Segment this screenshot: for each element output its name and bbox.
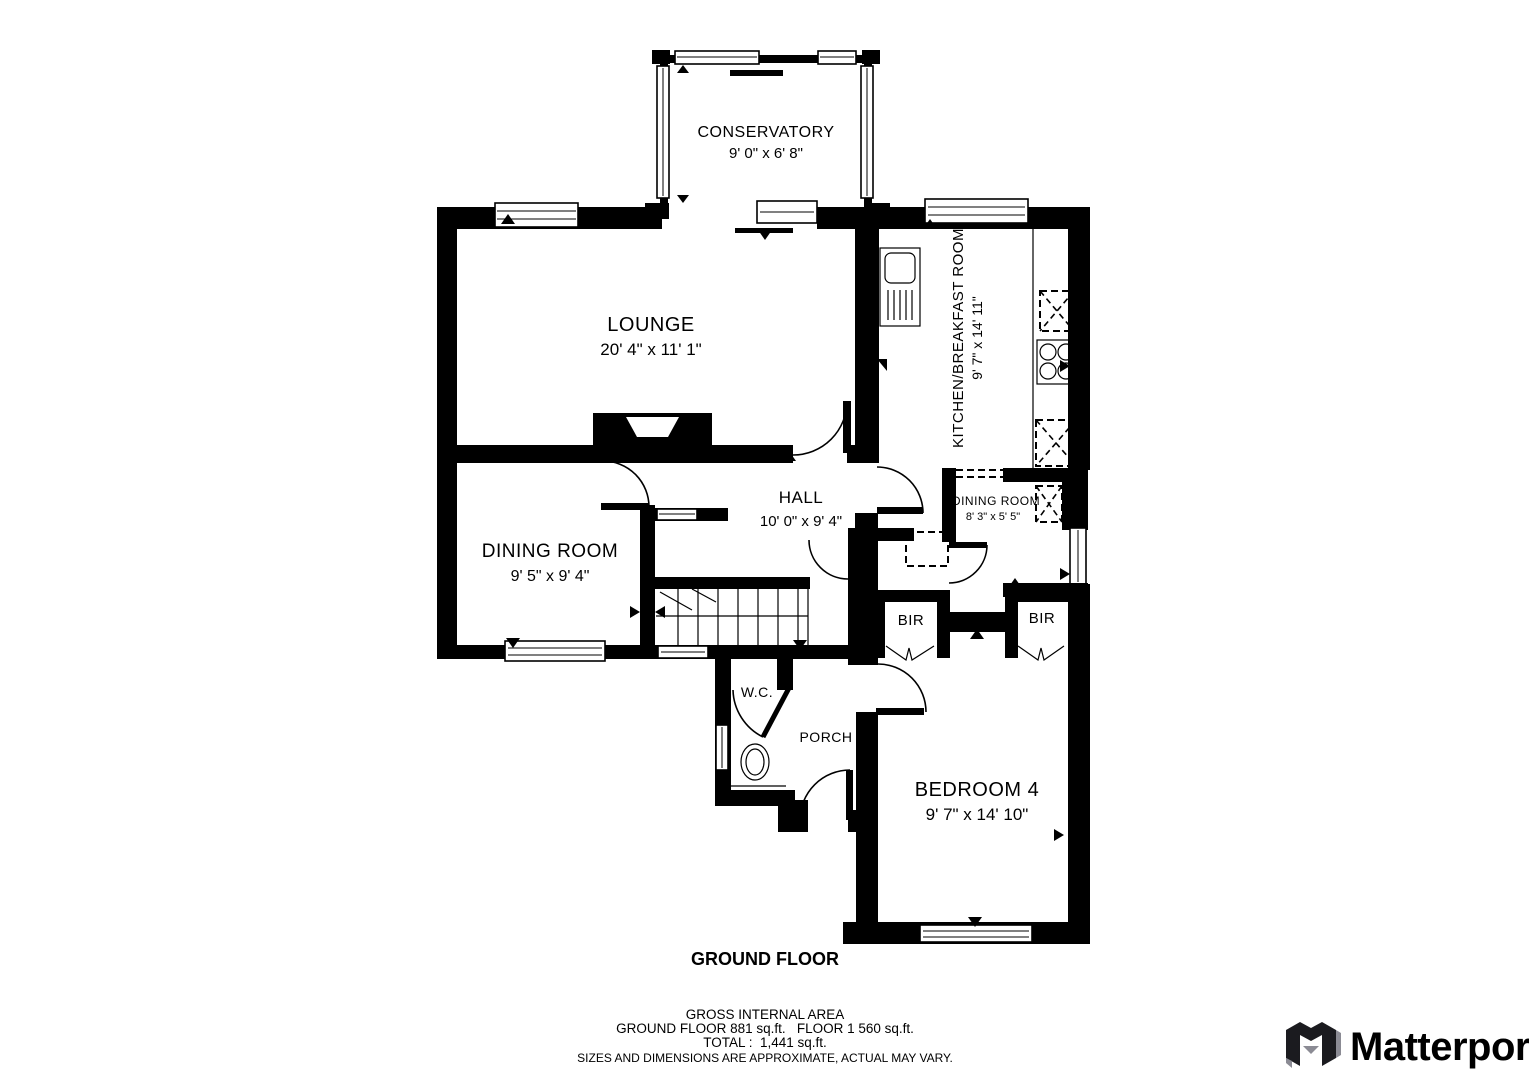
window xyxy=(505,641,605,661)
toilet-bowl xyxy=(746,749,764,775)
arrow-marker xyxy=(1060,568,1070,580)
door-arc xyxy=(793,401,847,455)
room-dims: 9' 7" x 14' 10" xyxy=(926,805,1029,824)
door-leaf xyxy=(876,708,924,715)
door-arc xyxy=(878,664,926,712)
area-title: GROSS INTERNAL AREA xyxy=(686,1007,845,1022)
floorplan-drawing: CONSERVATORY 9' 0" x 6' 8" LOUNGE 20' 4"… xyxy=(0,0,1529,1080)
room-label: KITCHEN/BREAKFAST ROOM xyxy=(950,228,967,448)
room-conservatory: CONSERVATORY 9' 0" x 6' 8" xyxy=(645,50,890,219)
wall xyxy=(1068,207,1090,470)
brand-name: Matterport xyxy=(1350,1025,1529,1069)
window xyxy=(925,199,1028,223)
wall xyxy=(878,528,914,541)
room-label-group: KITCHEN/BREAKFAST ROOM 9' 7" x 14' 11" xyxy=(950,228,985,448)
wall xyxy=(855,207,879,463)
logo-shape xyxy=(1322,1022,1336,1066)
logo-shape-gray xyxy=(1336,1030,1341,1058)
wall xyxy=(777,645,793,690)
wall xyxy=(855,513,878,530)
room-label: HALL xyxy=(779,488,824,507)
bifold-door xyxy=(1018,646,1064,660)
bifold-door xyxy=(886,646,934,660)
wall xyxy=(856,645,878,665)
window xyxy=(920,925,1032,942)
wall xyxy=(1030,468,1088,482)
wall xyxy=(437,445,793,463)
room-label: PORCH xyxy=(799,729,852,745)
sink-basin xyxy=(885,253,915,283)
staircase xyxy=(656,589,808,650)
disclaimer: SIZES AND DIMENSIONS ARE APPROXIMATE, AC… xyxy=(577,1051,953,1065)
room-dims: 10' 0" x 9' 4" xyxy=(760,513,842,530)
room-label: BEDROOM 4 xyxy=(915,779,1040,801)
floorplan-page: CONSERVATORY 9' 0" x 6' 8" LOUNGE 20' 4"… xyxy=(0,0,1529,1080)
door-arc xyxy=(949,545,987,583)
hob-ring xyxy=(1040,363,1056,379)
room-dims: 8' 3" x 5' 5" xyxy=(966,511,1020,523)
radiator xyxy=(730,70,783,76)
arrow-marker xyxy=(1054,829,1064,841)
room-bir-right: BIR xyxy=(948,590,1075,660)
arrow-marker xyxy=(677,195,689,203)
logo-shape-gray xyxy=(1303,1046,1319,1054)
wall xyxy=(948,612,1008,632)
wall-corner xyxy=(862,50,880,64)
wall xyxy=(640,505,655,657)
room-bir-left: BIR xyxy=(872,590,950,660)
door-leaf xyxy=(601,503,649,510)
wall xyxy=(1068,584,1090,944)
door-arc xyxy=(603,461,649,507)
room-dims: 20' 4" x 11' 1" xyxy=(600,340,701,359)
arrow-marker xyxy=(630,606,640,618)
door-leaf xyxy=(949,542,987,548)
room-label: CONSERVATORY xyxy=(698,124,835,141)
room-dims: 9' 7" x 14' 11" xyxy=(969,296,985,380)
door-leaf xyxy=(877,507,923,514)
logo-shape xyxy=(1300,1022,1322,1041)
area-total: TOTAL : 1,441 sq.ft. xyxy=(703,1035,827,1050)
room-label: W.C. xyxy=(741,684,773,700)
wall xyxy=(1062,482,1088,530)
hob-ring xyxy=(1040,344,1056,360)
room-dims: 9' 5" x 9' 4" xyxy=(511,568,590,585)
brand-logo: Matterport xyxy=(1286,1022,1529,1069)
stair-direction-line xyxy=(692,589,716,602)
room-label: BIR xyxy=(1029,610,1056,627)
door-leaf xyxy=(846,770,853,820)
room-label: DINING ROOM xyxy=(482,541,618,562)
door-arc xyxy=(809,540,848,579)
room-hall: HALL 10' 0" x 9' 4" xyxy=(601,451,948,665)
wall xyxy=(1005,590,1018,658)
room-label: DINING ROOM xyxy=(952,494,1040,508)
area-line1: GROUND FLOOR 881 sq.ft. FLOOR 1 560 sq.f… xyxy=(616,1021,914,1036)
room-label: BIR xyxy=(898,612,925,629)
arrow-marker xyxy=(677,65,689,73)
wall-corner xyxy=(652,50,670,64)
arrow-marker xyxy=(758,230,772,240)
wall xyxy=(437,207,457,657)
wall xyxy=(778,800,808,832)
area-summary: GROSS INTERNAL AREA GROUND FLOOR 881 sq.… xyxy=(577,1007,953,1065)
wall xyxy=(653,577,810,589)
door-arc xyxy=(877,467,923,513)
matterport-icon xyxy=(1286,1022,1341,1068)
floor-title: GROUND FLOOR xyxy=(691,949,839,969)
wall xyxy=(1003,468,1033,482)
room-dims: 9' 0" x 6' 8" xyxy=(729,145,803,162)
room-label: LOUNGE xyxy=(607,314,694,336)
room-wc: W.C. xyxy=(715,645,795,806)
wall xyxy=(856,712,878,944)
wall xyxy=(715,645,731,800)
room-dining-nook: DINING ROOM 8' 3" x 5' 5" xyxy=(878,468,1088,597)
